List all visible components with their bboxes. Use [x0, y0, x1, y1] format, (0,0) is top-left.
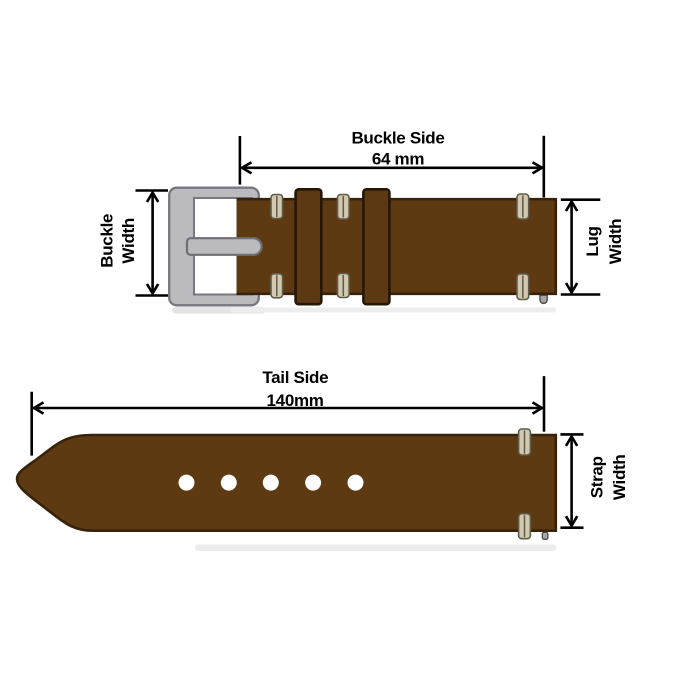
svg-text:Width: Width	[610, 455, 629, 501]
svg-text:Buckle: Buckle	[98, 214, 117, 268]
svg-text:Tail Side: Tail Side	[262, 368, 328, 387]
svg-text:Width: Width	[119, 218, 138, 264]
svg-text:Lug: Lug	[583, 226, 602, 256]
svg-text:Buckle Side: Buckle Side	[351, 129, 444, 148]
svg-text:140mm: 140mm	[267, 391, 324, 410]
svg-text:64 mm: 64 mm	[372, 150, 425, 169]
svg-text:Strap: Strap	[588, 456, 607, 498]
svg-text:Width: Width	[606, 219, 625, 265]
